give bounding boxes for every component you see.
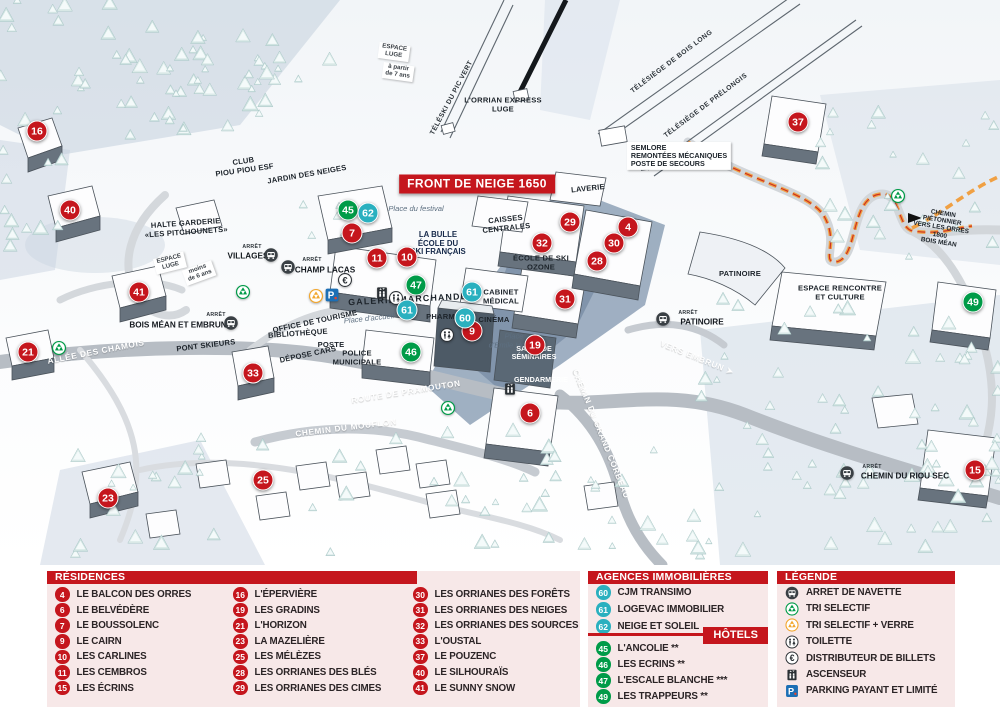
map-marker-30: 30 (604, 233, 625, 254)
legend-item: 49LES TRAPPEURS ** (596, 689, 708, 704)
map-label: CAISSES CENTRALES (481, 213, 531, 235)
map-marker-46: 46 (401, 342, 422, 363)
map-marker-32: 32 (532, 233, 553, 254)
map-label: à partir de 7 ans (382, 62, 415, 82)
map-label: GENDARMERIE (514, 376, 568, 384)
legend-item-label: LES ECRINS ** (618, 659, 685, 670)
map-marker-19: 19 (525, 335, 546, 356)
bus-icon (264, 248, 279, 263)
number-badge-21: 21 (233, 618, 248, 633)
legend-item: 47L'ESCALE BLANCHE *** (596, 673, 727, 688)
map-marker-41: 41 (129, 282, 150, 303)
map-label: VILLAGES (228, 251, 269, 260)
residences-header: RÉSIDENCES (47, 571, 417, 584)
number-badge-61: 61 (596, 602, 611, 617)
legend-item-label: TRI SELECTIF + VERRE (806, 620, 914, 631)
legend-item: TRI SELECTIF + VERRE (785, 618, 914, 633)
map-label: CABINET MÉDICAL (483, 289, 519, 306)
legend-item: 23LA MAZELIÈRE (233, 634, 325, 649)
bus-icon (224, 316, 239, 331)
legend-item: 32LES ORRIANES DES SOURCES (413, 618, 578, 633)
legend-item: 30LES ORRIANES DES FORÊTS (413, 587, 570, 602)
elevator-icon (785, 668, 799, 682)
map-marker-37: 37 (788, 112, 809, 133)
map-label: ARRÊT (242, 245, 261, 251)
map-label: PATINOIRE (680, 317, 723, 326)
map-marker-60: 60 (455, 308, 476, 329)
legend-item: 16L'ÉPERVIÈRE (233, 587, 317, 602)
legende-header: LÉGENDE (777, 571, 955, 584)
recycle-green-icon (236, 285, 251, 300)
legend-item-label: L'ANCOLIE ** (618, 643, 679, 654)
map-label: CHEMIN DU MOUFLON (295, 417, 397, 439)
map-label: CHEMIN DU GRAND CORBEAU (571, 368, 631, 500)
legend-item: 31LES ORRIANES DES NEIGES (413, 603, 567, 618)
legend-item-label: NEIGE ET SOLEIL (618, 621, 700, 632)
agences-header: AGENCES IMMOBILIÈRES (588, 571, 768, 584)
svg-text:P: P (328, 291, 335, 302)
recycle-yellow-icon (785, 618, 799, 632)
legend-item-label: LE BALCON DES ORRES (77, 589, 192, 600)
svg-text:€: € (342, 275, 348, 285)
resort-map-page: FRONT DE NEIGE 1650 ESPACE LUGEà partir … (0, 0, 1000, 707)
map-label: PONT SKIEURS (176, 338, 236, 354)
legend-item: ARRET DE NAVETTE (785, 585, 901, 600)
svg-text:P: P (788, 686, 794, 696)
legend-item-label: TRI SELECTIF (806, 603, 870, 614)
number-badge-33: 33 (413, 634, 428, 649)
legend-item: 62NEIGE ET SOLEIL (596, 619, 699, 634)
number-badge-46: 46 (596, 657, 611, 672)
legend-item-label: LE SILHOURAÏS (435, 667, 509, 678)
legend-item-label: LES MÉLÈZES (255, 651, 321, 662)
number-badge-47: 47 (596, 673, 611, 688)
legend-item: 15LES ÉCRINS (55, 681, 134, 696)
legend-item: 4LE BALCON DES ORRES (55, 587, 191, 602)
elevator-icon (503, 382, 518, 397)
map-marker-23: 23 (98, 488, 119, 509)
legend-item-label: L'ÉPERVIÈRE (255, 589, 318, 600)
number-badge-45: 45 (596, 641, 611, 656)
map-label: VERS EMBRUN ➤ (659, 339, 735, 377)
map-marker-11: 11 (367, 248, 388, 269)
recycle-green-icon (785, 602, 799, 616)
map-label: ÉCOLE DE SKI OZONE (513, 255, 569, 272)
legend-item-label: LE BOUSSOLENC (77, 620, 159, 631)
euro-icon: € (338, 273, 353, 288)
map-label: SEMLORE REMONTÉES MÉCANIQUES POSTE DE SE… (627, 142, 731, 170)
legend-item: TRI SELECTIF (785, 601, 870, 616)
map-label: BIBLIOTHÈQUE (268, 328, 328, 341)
recycle-green-icon (891, 189, 906, 204)
map-label: ESPACE LUGE (378, 42, 411, 62)
number-badge-40: 40 (413, 665, 428, 680)
map-label: CLUB PIOU PIOU ESF (214, 153, 275, 178)
elevator-icon (375, 286, 390, 301)
legende-panel: LÉGENDE ARRET DE NAVETTETRI SELECTIFTRI … (777, 571, 955, 707)
legend-item: 11LES CEMBROS (55, 665, 147, 680)
bus-icon (785, 586, 799, 600)
legend-item: 10LES CARLINES (55, 649, 147, 664)
number-badge-60: 60 (596, 585, 611, 600)
map-marker-10: 10 (397, 247, 418, 268)
map-label: LAVERIE (571, 183, 605, 195)
legend-item: €DISTRIBUTEUR DE BILLETS (785, 651, 935, 666)
legend-item: 45L'ANCOLIE ** (596, 641, 678, 656)
map-label: JARDIN DES NEIGES (267, 164, 347, 186)
legend-item-label: LES TRAPPEURS ** (618, 691, 708, 702)
legend-item: 29LES ORRIANES DES CIMES (233, 681, 381, 696)
toilet-icon (785, 635, 799, 649)
map-marker-62: 62 (358, 203, 379, 224)
residences-panel: RÉSIDENCES 4LE BALCON DES ORRES6LE BELVÉ… (47, 571, 580, 707)
legend-item-label: LES ORRIANES DES NEIGES (435, 605, 568, 616)
legend-item-label: L'ESCALE BLANCHE *** (618, 675, 728, 686)
legend-item-label: LES ÉCRINS (77, 683, 134, 694)
map-label: ARRÊT (678, 311, 697, 317)
map-marker-31: 31 (555, 289, 576, 310)
legend-item: 19LES GRADINS (233, 603, 320, 618)
number-badge-41: 41 (413, 681, 428, 696)
bus-icon (840, 466, 855, 481)
legend-item-label: LOGEVAC IMMOBILIER (618, 604, 725, 615)
map-marker-28: 28 (587, 251, 608, 272)
legend-item-label: L'OUSTAL (435, 636, 482, 647)
recycle-green-icon (441, 401, 456, 416)
map-label: ARRÊT (862, 465, 881, 471)
number-badge-32: 32 (413, 618, 428, 633)
legend-item: 7LE BOUSSOLENC (55, 618, 159, 633)
toilet-icon (440, 328, 455, 343)
legend-item: 40LE SILHOURAÏS (413, 665, 508, 680)
map-marker-61: 61 (397, 300, 418, 321)
map-label: POLICE MUNICIPALE (333, 350, 382, 367)
number-badge-30: 30 (413, 587, 428, 602)
map-label: CHEMIN PIÉTONNIER VERS LES ORRES 1800 BO… (909, 206, 973, 251)
legend-item: 28LES ORRIANES DES BLÉS (233, 665, 377, 680)
legend-item-label: LES ORRIANES DES FORÊTS (435, 589, 570, 600)
number-badge-23: 23 (233, 634, 248, 649)
legend-item-label: ARRET DE NAVETTE (806, 587, 901, 598)
legend-item-label: ASCENSEUR (806, 669, 866, 680)
map-label: ARRÊT (302, 258, 321, 264)
legend-item: PPARKING PAYANT ET LIMITÉ (785, 683, 937, 698)
legend-item: 9LE CAIRN (55, 634, 122, 649)
legend-item-label: LES ORRIANES DES SOURCES (435, 620, 579, 631)
number-badge-10: 10 (55, 650, 70, 665)
legend-item-label: LES CARLINES (77, 651, 147, 662)
legend-item-label: LE POUZENC (435, 651, 497, 662)
recycle-yellow-icon (309, 289, 324, 304)
map-label: TÉLÉSIÈGE DE BOIS LONG (630, 29, 715, 96)
number-badge-16: 16 (233, 587, 248, 602)
number-badge-49: 49 (596, 689, 611, 704)
legend-item: 60CJM TRANSIMO (596, 585, 691, 600)
map-label: Place du festival (388, 205, 443, 214)
legend-item-label: DISTRIBUTEUR DE BILLETS (806, 653, 935, 664)
legend-item: 61LOGEVAC IMMOBILIER (596, 602, 724, 617)
map-label: TÉLÉSIÈGE DE PRÉLONGIS (663, 72, 749, 140)
number-badge-4: 4 (55, 587, 70, 602)
legend-item-label: LES GRADINS (255, 605, 320, 616)
map-label: LA BULLE ÉCOLE DU SKI FRANÇAIS (410, 231, 465, 257)
map-marker-15: 15 (965, 460, 986, 481)
number-badge-19: 19 (233, 603, 248, 618)
map-marker-40: 40 (60, 200, 81, 221)
legend-item: 25LES MÉLÈZES (233, 649, 321, 664)
map-marker-21: 21 (18, 342, 39, 363)
map-label: moins de 6 ans (182, 260, 216, 285)
legend-item-label: LE BELVÉDÈRE (77, 605, 150, 616)
number-badge-29: 29 (233, 681, 248, 696)
map-marker-6: 6 (520, 403, 541, 424)
number-badge-37: 37 (413, 650, 428, 665)
number-badge-28: 28 (233, 665, 248, 680)
legend-item: 46LES ECRINS ** (596, 657, 685, 672)
number-badge-62: 62 (596, 619, 611, 634)
euro-icon: € (785, 651, 799, 665)
map-label: ESPACE RENCONTRE ET CULTURE (798, 285, 882, 302)
map-marker-33: 33 (243, 363, 264, 384)
map-marker-16: 16 (27, 121, 48, 142)
bus-icon (656, 312, 671, 327)
map-label: PATINOIRE (719, 270, 761, 279)
map-marker-25: 25 (253, 470, 274, 491)
map-marker-45: 45 (338, 200, 359, 221)
legend-item: 6LE BELVÉDÈRE (55, 603, 149, 618)
legend-item-label: LA MAZELIÈRE (255, 636, 325, 647)
number-badge-6: 6 (55, 603, 70, 618)
recycle-green-icon (52, 341, 67, 356)
legend-item: 21L'HORIZON (233, 618, 307, 633)
map-marker-7: 7 (342, 223, 363, 244)
bus-icon (281, 260, 296, 275)
legend-item: 37LE POUZENC (413, 649, 496, 664)
legend-item-label: LE CAIRN (77, 636, 122, 647)
legend-item-label: L'HORIZON (255, 620, 307, 631)
map-label: L'ORRIAN EXPRESS LUGE (464, 97, 542, 114)
map-label: BOIS MÉAN ET EMBRUN (129, 320, 226, 329)
number-badge-15: 15 (55, 681, 70, 696)
number-badge-25: 25 (233, 650, 248, 665)
parking-icon: P (785, 684, 799, 698)
map-marker-47: 47 (406, 275, 427, 296)
map-label: CINÉMA (478, 316, 509, 325)
legend-item-label: LES ORRIANES DES CIMES (255, 683, 382, 694)
legend-item: TOILETTE (785, 634, 852, 649)
legend-item: ASCENSEUR (785, 667, 866, 682)
hotels-header: HÔTELS (703, 627, 768, 644)
number-badge-7: 7 (55, 618, 70, 633)
map-label: CHEMIN DU RIOU SEC (861, 471, 949, 480)
legend-item-label: LES ORRIANES DES BLÉS (255, 667, 377, 678)
map-marker-61: 61 (462, 282, 483, 303)
agences-panel: AGENCES IMMOBILIÈRES 60CJM TRANSIMO61LOG… (588, 571, 768, 707)
number-badge-31: 31 (413, 603, 428, 618)
legend-item: 41LE SUNNY SNOW (413, 681, 515, 696)
map-marker-49: 49 (963, 292, 984, 313)
number-badge-9: 9 (55, 634, 70, 649)
map-label: DÉPOSE CARS (279, 345, 337, 365)
legend-item: 33L'OUSTAL (413, 634, 481, 649)
map-marker-29: 29 (560, 212, 581, 233)
legend-item-label: TOILETTE (806, 636, 852, 647)
map-label: HALTE GARDERIE «LES PITCHOUNETS» (144, 217, 228, 240)
legend-item-label: LES CEMBROS (77, 667, 147, 678)
map-overlay: ESPACE LUGEà partir de 7 ansESPACE LUGEm… (0, 0, 1000, 565)
number-badge-11: 11 (55, 665, 70, 680)
parking-icon: P (325, 288, 340, 303)
legend-item-label: PARKING PAYANT ET LIMITÉ (806, 685, 937, 696)
svg-text:€: € (790, 653, 795, 663)
legend-item-label: LE SUNNY SNOW (435, 683, 516, 694)
legend-item-label: CJM TRANSIMO (618, 587, 692, 598)
